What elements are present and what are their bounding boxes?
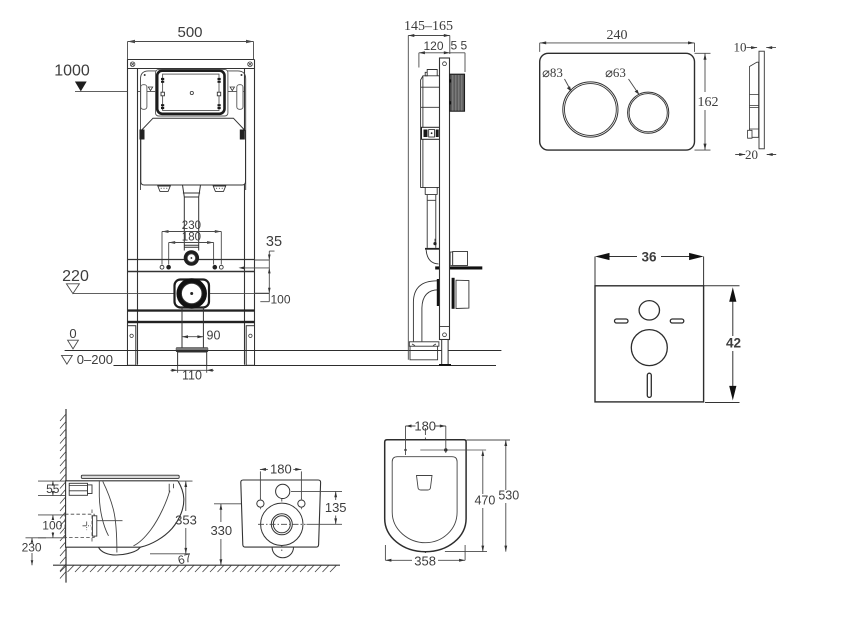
svg-text:240: 240 bbox=[607, 28, 628, 43]
svg-text:100: 100 bbox=[42, 519, 62, 533]
svg-text:145–165: 145–165 bbox=[404, 19, 453, 34]
svg-text:353: 353 bbox=[175, 513, 197, 528]
svg-text:120: 120 bbox=[423, 39, 443, 53]
svg-text:36: 36 bbox=[641, 250, 657, 265]
svg-text:110: 110 bbox=[182, 369, 202, 383]
svg-text:20: 20 bbox=[745, 147, 758, 162]
svg-text:⌀63: ⌀63 bbox=[605, 65, 626, 80]
svg-text:330: 330 bbox=[210, 523, 232, 538]
svg-text:180: 180 bbox=[414, 419, 436, 434]
svg-text:180: 180 bbox=[182, 232, 201, 244]
svg-text:0: 0 bbox=[69, 326, 76, 341]
svg-text:135: 135 bbox=[325, 500, 347, 515]
svg-text:1000: 1000 bbox=[54, 63, 90, 80]
svg-text:230: 230 bbox=[182, 220, 201, 232]
svg-text:180: 180 bbox=[270, 461, 292, 476]
svg-text:35: 35 bbox=[266, 234, 282, 250]
svg-text:500: 500 bbox=[177, 24, 202, 41]
svg-text:5 5: 5 5 bbox=[450, 39, 467, 53]
svg-text:⌀83: ⌀83 bbox=[542, 65, 563, 80]
svg-text:55: 55 bbox=[46, 482, 60, 496]
svg-text:358: 358 bbox=[414, 554, 436, 569]
svg-text:470: 470 bbox=[474, 494, 495, 508]
svg-text:162: 162 bbox=[698, 95, 719, 110]
svg-text:90: 90 bbox=[207, 329, 221, 343]
svg-text:0–200: 0–200 bbox=[77, 352, 113, 367]
svg-text:220: 220 bbox=[62, 268, 89, 285]
svg-text:100: 100 bbox=[271, 292, 291, 306]
svg-text:530: 530 bbox=[498, 489, 519, 503]
svg-text:230: 230 bbox=[22, 541, 42, 555]
svg-text:42: 42 bbox=[726, 336, 741, 351]
svg-text:10: 10 bbox=[734, 40, 747, 55]
